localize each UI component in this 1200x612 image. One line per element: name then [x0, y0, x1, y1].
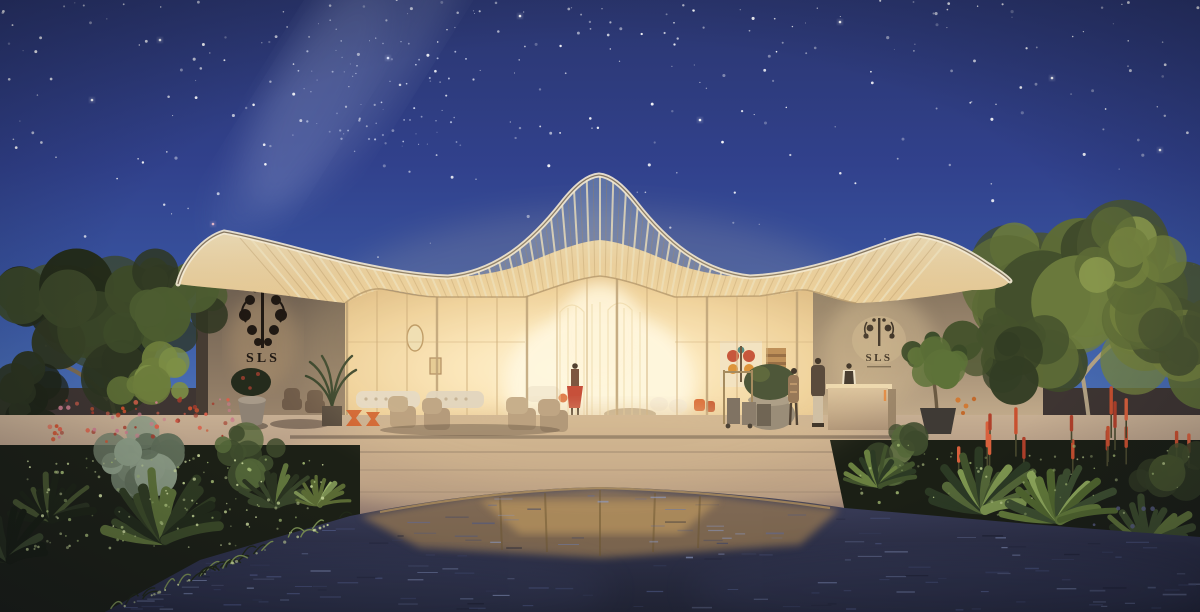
- hotel-rendering: SLS SLS: [0, 0, 1200, 612]
- vignette: [0, 0, 1200, 612]
